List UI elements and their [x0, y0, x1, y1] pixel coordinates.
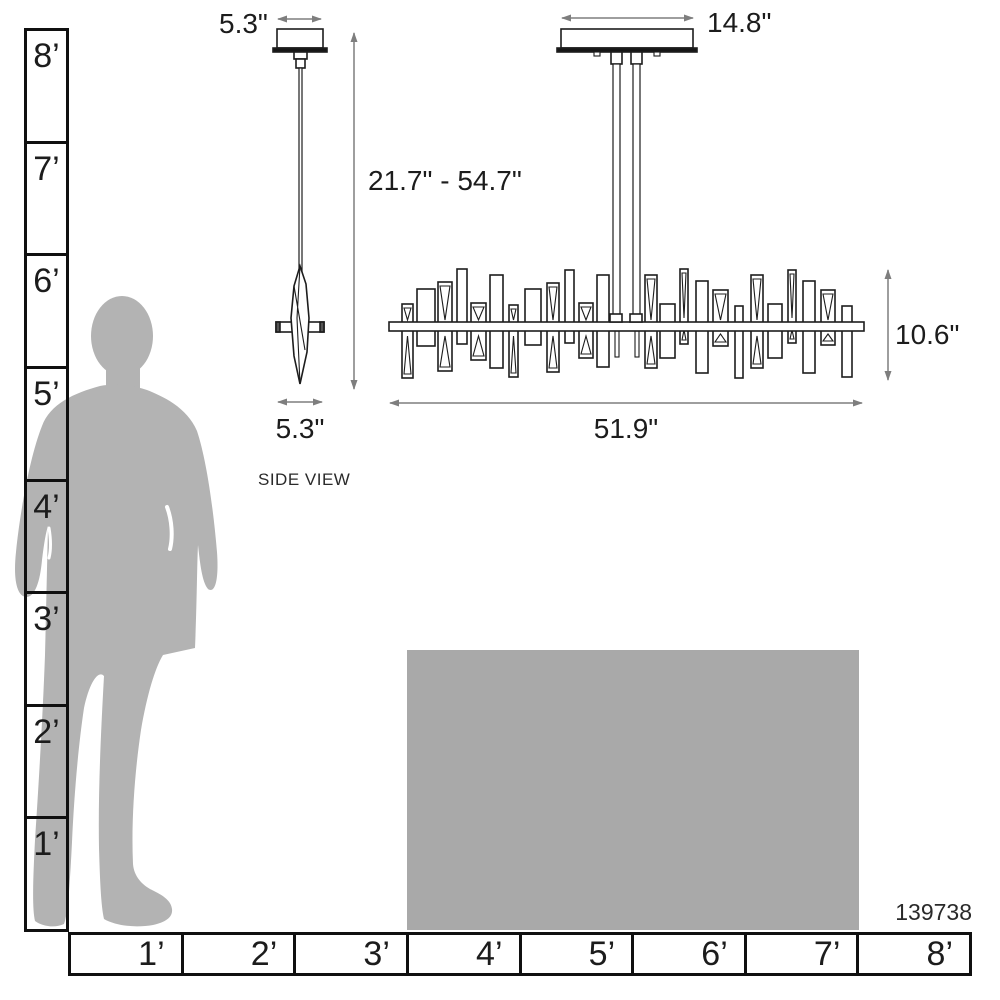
dim-label-height-range: 21.7" - 54.7": [368, 166, 522, 197]
horizontal-ruler-cell: 6’: [634, 935, 747, 973]
vertical-ruler-cell: 7’: [27, 144, 66, 257]
ruler-label: 8’: [927, 935, 953, 974]
ruler-label: 2’: [33, 713, 59, 751]
ruler-label: 3’: [363, 935, 389, 974]
dim-label-canopy-front-width: 14.8": [707, 8, 771, 39]
ruler-label: 5’: [33, 375, 59, 413]
vertical-ruler-cell: 2’: [27, 707, 66, 820]
ruler-label: 3’: [33, 600, 59, 638]
vertical-ruler-cell: 8’: [27, 31, 66, 144]
vertical-ruler-cell: 4’: [27, 482, 66, 595]
vertical-ruler-cell: 5’: [27, 369, 66, 482]
dim-label-fixture-width: 51.9": [576, 414, 676, 445]
ruler-label: 7’: [33, 150, 59, 188]
dim-label-canopy-side-width: 5.3": [219, 9, 268, 40]
scale-table-block: [407, 650, 859, 930]
ruler-label: 8’: [33, 37, 59, 75]
vertical-ruler-cell: 3’: [27, 594, 66, 707]
ruler-label: 1’: [138, 935, 164, 974]
horizontal-ruler-cell: 2’: [184, 935, 297, 973]
vertical-ruler-cell: 6’: [27, 256, 66, 369]
horizontal-ruler-cell: 4’: [409, 935, 522, 973]
side-view-drawing: [273, 29, 327, 384]
ruler-label: 4’: [476, 935, 502, 974]
horizontal-ruler-cell: 1’: [71, 935, 184, 973]
horizontal-ruler-cell: 5’: [522, 935, 635, 973]
ruler-label: 1’: [33, 825, 59, 863]
front-view-drawing: [389, 29, 864, 378]
ruler-label: 7’: [814, 935, 840, 974]
dim-label-fixture-height: 10.6": [895, 320, 959, 351]
ruler-label: 4’: [33, 488, 59, 526]
horizontal-ruler-cell: 7’: [747, 935, 860, 973]
horizontal-scale-ruler: 1’ 2’ 3’ 4’ 5’ 6’ 7’ 8’: [68, 932, 972, 976]
vertical-scale-ruler: 8’ 7’ 6’ 5’ 4’ 3’ 2’ 1’: [24, 28, 69, 932]
vertical-ruler-cell: 1’: [27, 819, 66, 929]
dimension-diagram: 8’ 7’ 6’ 5’ 4’ 3’ 2’ 1’ 1’ 2’ 3’ 4’ 5’ 6…: [0, 0, 1000, 1000]
product-number: 139738: [889, 899, 972, 926]
ruler-label: 2’: [251, 935, 277, 974]
ruler-label: 6’: [33, 262, 59, 300]
horizontal-ruler-cell: 3’: [296, 935, 409, 973]
diagram-canvas: [0, 0, 1000, 1000]
side-view-caption: SIDE VIEW: [258, 470, 350, 490]
horizontal-ruler-cell: 8’: [859, 935, 969, 973]
dim-label-side-fixture-width: 5.3": [262, 414, 338, 445]
ruler-label: 5’: [589, 935, 615, 974]
fixture-bar: [389, 322, 864, 331]
ruler-label: 6’: [701, 935, 727, 974]
